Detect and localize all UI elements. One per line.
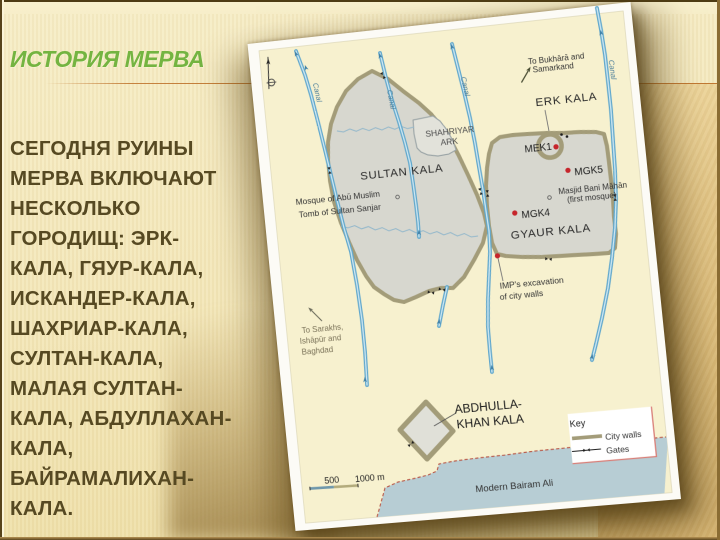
svg-text:500: 500 (324, 474, 340, 485)
svg-text:Key: Key (569, 417, 586, 429)
svg-text:ARK: ARK (440, 135, 459, 147)
svg-text:Gates: Gates (606, 443, 630, 455)
